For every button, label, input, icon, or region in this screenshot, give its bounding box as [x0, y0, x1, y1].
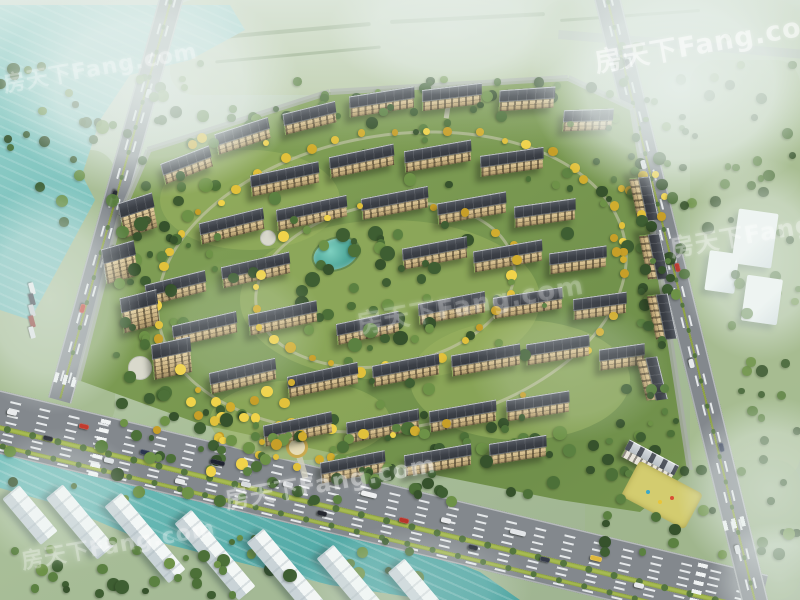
tree: [638, 288, 645, 295]
median-shrub: [704, 403, 709, 408]
tree: [159, 221, 170, 232]
tree: [751, 114, 758, 121]
tree: [217, 446, 226, 455]
tree: [671, 289, 682, 300]
tree: [709, 507, 716, 514]
yellow-tree: [430, 204, 437, 211]
tree: [621, 384, 631, 394]
tree: [149, 576, 160, 587]
tree: [97, 564, 108, 575]
tree: [728, 321, 737, 330]
tree: [496, 111, 507, 122]
tree: [23, 131, 30, 138]
tree: [109, 537, 118, 546]
tree: [133, 486, 145, 498]
tree: [679, 114, 685, 120]
tree: [666, 274, 674, 282]
tree: [170, 106, 182, 118]
yellow-tree: [579, 175, 588, 184]
tree: [194, 422, 206, 434]
tree: [668, 538, 678, 548]
tree: [676, 74, 687, 85]
tree: [725, 80, 735, 90]
tree: [116, 226, 129, 239]
median-shrub: [382, 516, 390, 524]
tree: [243, 442, 255, 454]
tree: [446, 496, 457, 507]
median-shrub: [509, 546, 517, 554]
tree: [393, 229, 403, 239]
median-shrub: [454, 552, 461, 559]
tree: [194, 411, 203, 420]
median-shrub: [530, 571, 537, 578]
median-shrub: [3, 425, 11, 433]
tree: [206, 466, 216, 476]
yellow-tree: [309, 355, 315, 361]
median-shrub: [24, 449, 31, 456]
median-shrub: [231, 480, 239, 488]
yellow-tree: [476, 128, 484, 136]
tree: [494, 78, 502, 86]
tree: [614, 57, 625, 68]
tree: [758, 414, 765, 421]
tree: [586, 82, 597, 93]
tree: [207, 591, 215, 599]
tree: [710, 196, 721, 207]
tree: [612, 247, 621, 256]
tree: [732, 164, 740, 172]
yellow-tree: [281, 153, 291, 163]
tree: [420, 411, 428, 419]
tree: [348, 244, 360, 256]
tree: [662, 122, 671, 131]
tree: [793, 427, 800, 435]
median-shrub: [729, 504, 734, 509]
tree: [237, 535, 243, 541]
tree: [173, 196, 184, 207]
tree: [379, 108, 387, 116]
tree: [542, 303, 547, 308]
tree: [786, 236, 794, 244]
building-slab: [499, 86, 556, 111]
tree: [611, 176, 617, 182]
tree: [375, 259, 386, 270]
play-equipment: [658, 500, 662, 504]
tree: [132, 546, 141, 555]
median-shrub: [584, 565, 592, 573]
tree: [330, 446, 337, 453]
tree: [179, 76, 185, 82]
median-shrub: [710, 428, 715, 433]
median-shrub: [660, 583, 668, 591]
tree: [11, 547, 19, 555]
tree: [279, 398, 290, 409]
tree: [63, 586, 70, 593]
tree: [71, 483, 77, 489]
tree: [128, 263, 141, 276]
tree: [288, 379, 294, 385]
tree: [376, 400, 385, 409]
tree: [561, 227, 574, 240]
tree: [56, 195, 68, 207]
tree: [74, 170, 85, 181]
yellow-tree: [155, 321, 163, 329]
tree: [547, 476, 560, 489]
tree: [149, 92, 159, 102]
tree: [441, 221, 449, 229]
tree: [692, 133, 698, 139]
tree: [738, 388, 744, 394]
tree: [742, 366, 752, 376]
tree: [756, 93, 767, 104]
tree: [423, 383, 434, 394]
yellow-tree: [392, 129, 398, 135]
median-shrub: [748, 580, 753, 585]
tree: [158, 390, 170, 402]
tree: [182, 210, 194, 222]
tree: [781, 359, 789, 367]
tree: [382, 538, 389, 545]
yellow-tree: [358, 429, 369, 440]
tree: [656, 179, 667, 190]
tree: [369, 306, 377, 314]
tree: [65, 89, 73, 97]
tree: [214, 233, 221, 240]
tree: [380, 334, 389, 343]
tree: [425, 324, 434, 333]
tree: [114, 278, 125, 289]
tree: [123, 129, 132, 138]
tree: [10, 72, 18, 80]
tree: [508, 279, 515, 286]
tree: [599, 536, 611, 548]
tree: [259, 439, 265, 445]
median-shrub: [711, 595, 719, 600]
tree: [477, 102, 484, 109]
tree: [95, 589, 104, 598]
median-shrub: [54, 437, 62, 445]
median-shrub: [79, 443, 87, 451]
tree: [140, 339, 150, 349]
median-shrub: [357, 510, 365, 518]
tree: [127, 279, 133, 285]
tree: [724, 34, 730, 40]
yellow-tree: [358, 129, 366, 137]
tree: [298, 432, 307, 441]
median-shrub: [433, 528, 441, 536]
tree: [113, 352, 120, 359]
tree: [183, 555, 189, 561]
tree: [552, 181, 560, 189]
plaza: [260, 230, 276, 246]
tree: [182, 487, 194, 499]
tree: [758, 175, 765, 182]
yellow-tree: [491, 229, 499, 237]
tree: [48, 572, 58, 582]
tree: [746, 357, 755, 366]
yellow-tree: [461, 208, 470, 217]
yellow-tree: [328, 360, 334, 366]
median-shrub: [129, 455, 137, 463]
tree: [229, 591, 237, 599]
tree: [616, 419, 625, 428]
tree: [369, 477, 381, 489]
tree: [144, 393, 154, 403]
tree: [600, 200, 607, 207]
tree: [192, 578, 202, 588]
tree: [482, 91, 493, 102]
tree: [704, 90, 715, 101]
tree: [129, 324, 136, 331]
tree: [470, 106, 477, 113]
tree: [96, 120, 109, 133]
tree: [546, 451, 553, 458]
tree: [404, 173, 416, 185]
median-shrub: [201, 492, 208, 499]
tree: [600, 547, 610, 557]
tree: [250, 396, 259, 405]
tree: [309, 495, 319, 505]
yellow-tree: [256, 324, 262, 330]
tree: [293, 77, 302, 86]
tree: [632, 133, 641, 142]
tree: [747, 406, 758, 417]
tree: [673, 418, 679, 424]
tree: [197, 133, 207, 143]
tree: [46, 545, 55, 554]
tree: [322, 309, 333, 320]
tree: [109, 121, 118, 130]
median-shrub: [717, 454, 722, 459]
tree: [669, 524, 681, 536]
tree: [647, 392, 654, 399]
median-shrub: [28, 431, 36, 439]
tree: [124, 371, 135, 382]
tree: [186, 243, 191, 248]
median-shrub: [328, 522, 335, 529]
median-shrub: [559, 559, 567, 567]
median-shrub: [661, 226, 666, 231]
median-shrub: [618, 50, 623, 55]
tree: [89, 135, 98, 144]
tree: [610, 234, 618, 242]
tree: [758, 391, 765, 398]
median-shrub: [429, 546, 436, 553]
tree: [783, 528, 795, 540]
tree: [190, 568, 202, 580]
tree: [269, 192, 282, 205]
tree: [757, 547, 766, 556]
tree: [526, 176, 531, 181]
tree: [319, 240, 330, 251]
tree: [567, 185, 573, 191]
median-shrub: [458, 534, 466, 542]
tree: [134, 217, 148, 231]
tree: [160, 416, 170, 426]
tree: [788, 61, 797, 70]
play-equipment: [670, 496, 674, 500]
tree: [111, 468, 123, 480]
median-shrub: [180, 467, 188, 475]
median-shrub: [151, 479, 158, 486]
tree: [675, 243, 685, 253]
tree: [440, 76, 447, 83]
tree: [116, 398, 127, 409]
tree: [290, 216, 298, 224]
tree: [737, 61, 745, 69]
tree: [602, 520, 609, 527]
tree: [588, 440, 599, 451]
tree: [81, 117, 92, 128]
aerial-site-rendering: 房天下Fang.com房天下Fang.com房天下Fang.com房天下Fang…: [0, 0, 800, 600]
median-shrub: [226, 498, 233, 505]
tree: [273, 454, 279, 460]
tree: [534, 77, 544, 87]
yellow-tree: [620, 256, 627, 263]
tree: [292, 486, 303, 497]
tree: [337, 441, 349, 453]
median-shrub: [605, 0, 610, 5]
tree: [422, 137, 428, 143]
tree: [741, 308, 752, 319]
median-shrub: [698, 378, 703, 383]
median-shrub: [679, 302, 684, 307]
tree: [238, 493, 246, 501]
tree: [136, 75, 145, 84]
tree: [304, 325, 314, 335]
tree: [131, 430, 142, 441]
tree: [419, 429, 429, 439]
tree: [357, 547, 367, 557]
tree: [133, 232, 142, 241]
tree: [753, 156, 762, 165]
median-shrub: [686, 327, 691, 332]
median-shrub: [302, 516, 309, 523]
tree: [176, 171, 186, 181]
tree: [523, 489, 533, 499]
tree: [387, 104, 394, 111]
tree: [667, 430, 674, 437]
yellow-tree: [442, 419, 451, 428]
tree: [226, 435, 236, 445]
tree: [39, 136, 50, 147]
median-shrub: [353, 528, 360, 535]
tree: [567, 121, 573, 127]
tree: [165, 284, 177, 296]
tree: [643, 321, 653, 331]
tree: [31, 584, 40, 593]
tree: [665, 258, 671, 264]
tree: [696, 465, 707, 476]
tree: [651, 98, 658, 105]
tree: [283, 569, 297, 583]
tree: [791, 298, 798, 305]
tree: [660, 384, 669, 393]
tree: [640, 264, 651, 275]
median-shrub: [631, 595, 638, 600]
tree: [142, 588, 148, 594]
yellow-tree: [619, 222, 626, 229]
tree: [586, 466, 595, 475]
tree: [648, 421, 653, 426]
tree: [428, 470, 436, 478]
median-shrub: [483, 540, 491, 548]
yellow-tree: [226, 402, 235, 411]
median-shrub: [610, 571, 618, 579]
median-shrub: [692, 353, 697, 358]
tree: [206, 250, 213, 257]
tree: [293, 463, 301, 471]
tree: [239, 413, 248, 422]
tree: [795, 286, 800, 292]
tree: [363, 323, 378, 338]
median-shrub: [580, 583, 587, 590]
median-shrub: [281, 492, 289, 500]
yellow-tree: [548, 147, 558, 157]
tree: [115, 580, 129, 594]
tree: [702, 222, 714, 234]
tree: [756, 365, 768, 377]
tree: [261, 386, 272, 397]
tree: [37, 62, 46, 71]
tree: [652, 171, 658, 177]
median-shrub: [555, 577, 562, 584]
tree: [405, 547, 414, 556]
tree: [480, 455, 493, 468]
tree: [144, 452, 156, 464]
tree: [773, 548, 785, 560]
tree: [4, 135, 12, 143]
yellow-tree: [175, 364, 186, 375]
tree: [658, 341, 666, 349]
median-shrub: [332, 504, 340, 512]
tree: [229, 105, 237, 113]
tree: [24, 66, 32, 74]
median-shrub: [407, 522, 415, 530]
tree: [763, 170, 775, 182]
tree: [199, 178, 213, 192]
tree: [506, 487, 516, 497]
tree: [270, 483, 275, 488]
tree: [72, 101, 78, 107]
yellow-tree: [512, 255, 522, 265]
tree: [174, 574, 182, 582]
tree: [36, 564, 48, 576]
yellow-tree: [476, 324, 483, 331]
tree: [188, 140, 197, 149]
tree: [369, 378, 375, 384]
median-shrub: [256, 486, 264, 494]
tree: [606, 438, 613, 445]
tree: [680, 201, 690, 211]
tree: [413, 129, 419, 135]
tree: [780, 479, 787, 486]
yellow-tree: [159, 262, 168, 271]
tree: [35, 182, 45, 192]
tree: [639, 548, 646, 555]
tree: [166, 454, 175, 463]
yellow-tree: [231, 185, 241, 195]
tree: [643, 117, 648, 122]
tree: [667, 192, 678, 203]
tree: [616, 494, 626, 504]
median-shrub: [723, 479, 728, 484]
yellow-tree: [596, 328, 604, 336]
tree: [631, 42, 642, 53]
tree: [220, 413, 234, 427]
yellow-tree: [256, 270, 266, 280]
tree: [650, 258, 656, 264]
